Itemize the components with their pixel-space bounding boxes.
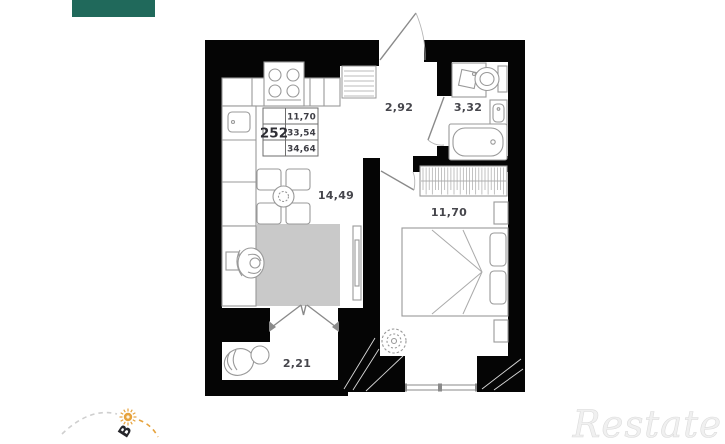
sun-path-arc-west xyxy=(62,413,117,434)
dining-table xyxy=(273,186,294,207)
info-total-area: 34,64 xyxy=(287,145,316,155)
wall-living-bedroom-divider xyxy=(363,158,380,310)
dining-chair xyxy=(257,169,281,190)
stove-icon xyxy=(264,62,304,106)
side-table-icon xyxy=(251,346,269,364)
floor-plan: 252 11,70 33,54 34,64 2,92 3,32 14,49 11… xyxy=(0,0,725,444)
nightstand xyxy=(494,202,508,224)
dining-chair xyxy=(286,169,310,190)
bedroom-door xyxy=(381,171,415,190)
person-figure xyxy=(250,258,260,268)
tv-screen xyxy=(355,240,359,286)
balcony-french-door xyxy=(269,305,339,332)
wall-balcony-right-mass xyxy=(338,308,405,392)
nightstand xyxy=(494,320,508,342)
watermark-text: Restate xyxy=(572,403,722,444)
compass: В xyxy=(62,409,158,441)
toilet-icon xyxy=(475,68,499,91)
dining-chair xyxy=(257,203,281,224)
bathtub-icon xyxy=(449,124,507,160)
bathroom-door xyxy=(428,97,444,145)
floor-plan-page: 252 11,70 33,54 34,64 2,92 3,32 14,49 11… xyxy=(0,0,725,444)
wall-right xyxy=(508,40,525,392)
bedroom-furniture xyxy=(382,166,508,353)
hall-area-label: 2,92 xyxy=(385,101,413,114)
apartment-info-box: 252 11,70 33,54 34,64 xyxy=(260,108,318,156)
compass-direction-letter: В xyxy=(114,422,135,441)
pillow xyxy=(490,271,506,304)
wall-living-bottom xyxy=(205,308,270,342)
rug xyxy=(256,224,340,306)
sun-path-arc-east xyxy=(139,420,158,437)
kitchen-living-area-label: 14,49 xyxy=(318,189,354,202)
bedroom-window xyxy=(405,384,477,392)
dining-chair xyxy=(286,203,310,224)
wall-bath-stub-top xyxy=(437,62,452,96)
entrance-door xyxy=(380,13,425,60)
brand-logo-bar xyxy=(72,0,155,17)
pillow xyxy=(490,233,506,266)
info-area: 33,54 xyxy=(287,129,316,139)
wall-top-hall xyxy=(340,40,379,66)
info-living-area: 11,70 xyxy=(287,113,316,123)
wall-balcony-bottom xyxy=(205,380,348,396)
apartment-number: 252 xyxy=(260,126,288,142)
bedroom-area-label: 11,70 xyxy=(431,206,467,219)
balcony-area-label: 2,21 xyxy=(283,357,311,370)
balcony-furniture xyxy=(220,344,269,380)
bathroom-area-label: 3,32 xyxy=(454,101,482,114)
plant-icon xyxy=(382,329,406,353)
